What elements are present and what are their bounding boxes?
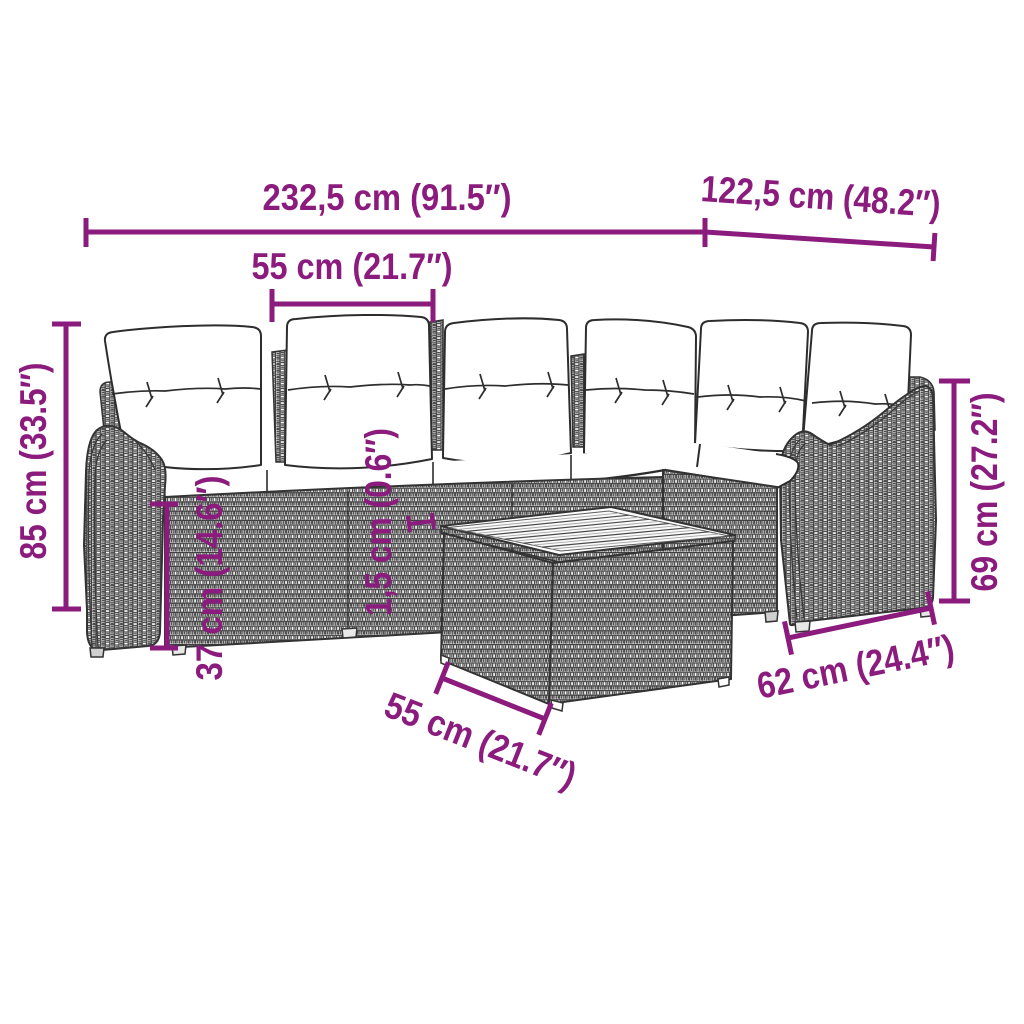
svg-text:1,5 cm (0.6″): 1,5 cm (0.6″) — [358, 428, 399, 616]
svg-text:232,5 cm (91.5″): 232,5 cm (91.5″) — [263, 177, 512, 218]
svg-text:55 cm (21.7″): 55 cm (21.7″) — [252, 246, 453, 287]
svg-text:69 cm (27.2″): 69 cm (27.2″) — [964, 393, 1005, 592]
svg-text:37 cm (14.6″): 37 cm (14.6″) — [189, 476, 230, 681]
svg-text:85 cm (33.5″): 85 cm (33.5″) — [13, 363, 54, 560]
